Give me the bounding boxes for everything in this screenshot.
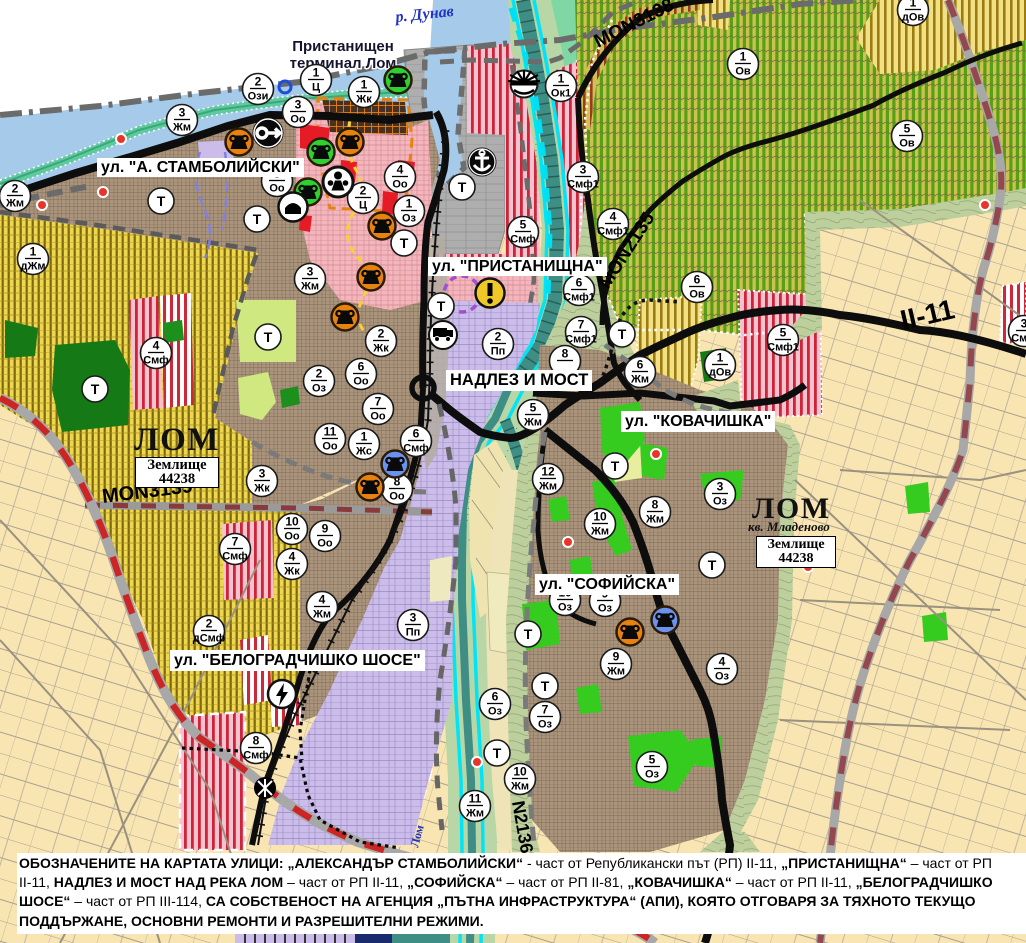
svg-text:10: 10 — [285, 515, 299, 529]
svg-text:Т: Т — [91, 381, 100, 397]
svg-text:Оз: Оз — [312, 383, 327, 395]
svg-text:дЖм: дЖм — [20, 261, 45, 273]
svg-text:Т: Т — [618, 326, 627, 342]
svg-text:Оз: Оз — [598, 603, 613, 615]
svg-text:2: 2 — [316, 367, 323, 381]
svg-text:Смф: Смф — [403, 443, 429, 455]
svg-text:Оо: Оо — [322, 441, 338, 453]
svg-text:4: 4 — [397, 163, 404, 177]
svg-text:4: 4 — [319, 593, 326, 607]
svg-text:2: 2 — [378, 327, 385, 341]
svg-text:Оо: Оо — [290, 114, 306, 126]
svg-text:11: 11 — [469, 792, 482, 806]
svg-text:Оо: Оо — [269, 183, 285, 195]
svg-text:7: 7 — [232, 535, 239, 549]
svg-text:5: 5 — [780, 326, 787, 340]
svg-text:Смф: Смф — [510, 234, 536, 246]
svg-text:Оз: Оз — [645, 769, 660, 781]
svg-text:2: 2 — [360, 184, 367, 198]
svg-text:3: 3 — [307, 265, 314, 279]
svg-text:дСмф: дСмф — [193, 633, 226, 645]
svg-text:Жм: Жм — [523, 417, 542, 429]
svg-text:Оо: Оо — [392, 179, 408, 191]
svg-text:10: 10 — [593, 510, 607, 524]
svg-text:Т: Т — [264, 329, 273, 345]
svg-text:4: 4 — [719, 655, 726, 669]
svg-text:1: 1 — [361, 430, 368, 444]
svg-text:3: 3 — [295, 98, 302, 112]
svg-text:Пристанищен: Пристанищен — [292, 38, 394, 55]
svg-text:Смф1: Смф1 — [767, 342, 799, 354]
svg-text:Оз: Оз — [538, 719, 553, 731]
svg-text:Пп: Пп — [406, 627, 421, 639]
svg-text:11: 11 — [324, 425, 337, 439]
svg-text:5: 5 — [520, 218, 527, 232]
svg-text:4: 4 — [610, 210, 617, 224]
svg-text:6: 6 — [576, 276, 583, 290]
svg-text:3: 3 — [580, 163, 587, 177]
svg-text:Ц: Ц — [359, 200, 367, 212]
svg-text:6: 6 — [637, 358, 644, 372]
svg-text:Смф: Смф — [222, 551, 248, 563]
svg-text:Пп: Пп — [491, 346, 506, 358]
svg-text:Смф: Смф — [1011, 333, 1026, 345]
svg-text:Оо: Оо — [284, 531, 300, 543]
svg-text:Жм: Жм — [5, 198, 24, 210]
svg-text:кв. Младеново: кв. Младеново — [748, 519, 830, 534]
svg-text:Смф: Смф — [143, 355, 169, 367]
svg-text:Оо: Оо — [353, 376, 369, 388]
svg-text:4: 4 — [153, 339, 160, 353]
svg-text:Оз: Оз — [715, 671, 730, 683]
svg-text:9: 9 — [613, 650, 620, 664]
svg-text:1: 1 — [313, 66, 320, 80]
svg-text:1: 1 — [30, 245, 37, 259]
svg-text:Т: Т — [611, 458, 620, 474]
svg-text:Смф1: Смф1 — [567, 179, 599, 191]
svg-text:Смф1: Смф1 — [597, 226, 629, 238]
svg-text:Жм: Жм — [510, 781, 529, 793]
svg-text:Оз: Оз — [402, 213, 417, 225]
svg-text:10: 10 — [513, 765, 527, 779]
svg-text:8: 8 — [562, 347, 569, 361]
svg-text:3: 3 — [1021, 317, 1026, 331]
svg-text:1: 1 — [740, 50, 747, 64]
svg-text:5: 5 — [904, 122, 911, 136]
svg-text:Оо: Оо — [389, 491, 405, 503]
svg-text:2: 2 — [255, 75, 262, 89]
svg-text:12: 12 — [541, 465, 555, 479]
svg-text:Жм: Жм — [300, 281, 319, 293]
svg-text:Жм: Жм — [606, 666, 625, 678]
svg-text:Т: Т — [708, 557, 717, 573]
svg-text:Оз: Оз — [558, 602, 573, 614]
svg-text:Т: Т — [524, 626, 533, 642]
svg-text:Оо: Оо — [317, 538, 333, 550]
svg-text:8: 8 — [253, 734, 260, 748]
svg-text:2: 2 — [12, 182, 19, 196]
svg-text:Т: Т — [157, 193, 166, 209]
svg-text:Жс: Жс — [355, 446, 372, 458]
svg-text:1: 1 — [406, 197, 413, 211]
svg-text:7: 7 — [375, 395, 382, 409]
svg-text:Смф1: Смф1 — [565, 334, 597, 346]
svg-text:Смф1: Смф1 — [563, 292, 595, 304]
svg-text:7: 7 — [578, 318, 585, 332]
svg-text:2: 2 — [206, 617, 213, 631]
svg-text:9: 9 — [322, 522, 329, 536]
svg-text:Смф: Смф — [243, 750, 269, 762]
svg-text:Оз: Оз — [488, 706, 503, 718]
svg-text:Жм: Жм — [312, 609, 331, 621]
svg-text:6: 6 — [694, 273, 701, 287]
svg-text:Жм: Жм — [538, 481, 557, 493]
svg-text:Жм: Жм — [465, 808, 484, 820]
svg-text:Жк: Жк — [372, 343, 389, 355]
svg-text:дОв: дОв — [709, 367, 732, 379]
svg-text:Т: Т — [493, 745, 502, 761]
svg-text:6: 6 — [413, 427, 420, 441]
svg-text:Ов: Ов — [899, 138, 915, 150]
svg-text:5: 5 — [649, 753, 656, 767]
svg-text:1: 1 — [717, 351, 724, 365]
svg-text:2: 2 — [495, 330, 502, 344]
svg-text:7: 7 — [542, 703, 549, 717]
svg-text:6: 6 — [492, 690, 499, 704]
svg-text:Жк: Жк — [253, 483, 270, 495]
svg-text:Ов: Ов — [689, 289, 705, 301]
svg-text:Т: Т — [541, 678, 550, 694]
svg-text:4: 4 — [289, 550, 296, 564]
svg-text:3: 3 — [179, 106, 186, 120]
svg-text:8: 8 — [652, 498, 659, 512]
svg-text:Оз: Оз — [713, 496, 728, 508]
svg-text:3: 3 — [410, 611, 417, 625]
svg-text:Ози: Ози — [248, 91, 269, 103]
svg-text:Т: Т — [253, 211, 262, 227]
svg-text:5: 5 — [530, 401, 537, 415]
svg-text:1: 1 — [558, 72, 565, 86]
svg-text:6: 6 — [358, 360, 365, 374]
svg-text:дОв: дОв — [902, 12, 925, 24]
svg-text:Т: Т — [458, 179, 467, 195]
svg-text:1: 1 — [910, 0, 917, 10]
svg-text:Т: Т — [437, 298, 446, 314]
svg-text:3: 3 — [717, 480, 724, 494]
svg-text:3: 3 — [259, 467, 266, 481]
svg-text:Жк: Жк — [355, 94, 372, 106]
svg-text:Жм: Жм — [590, 526, 609, 538]
svg-text:1: 1 — [361, 78, 368, 92]
svg-text:Жм: Жм — [630, 374, 649, 386]
svg-text:Ц: Ц — [312, 82, 320, 94]
svg-text:Ок1: Ок1 — [551, 88, 571, 100]
svg-text:Оо: Оо — [370, 411, 386, 423]
svg-text:ЛОМ: ЛОМ — [134, 422, 220, 458]
svg-text:Ов: Ов — [735, 66, 751, 78]
svg-text:Жм: Жм — [172, 122, 191, 134]
svg-text:Т: Т — [400, 235, 409, 251]
svg-text:Жк: Жк — [283, 566, 300, 578]
svg-text:Жм: Жм — [645, 514, 664, 526]
